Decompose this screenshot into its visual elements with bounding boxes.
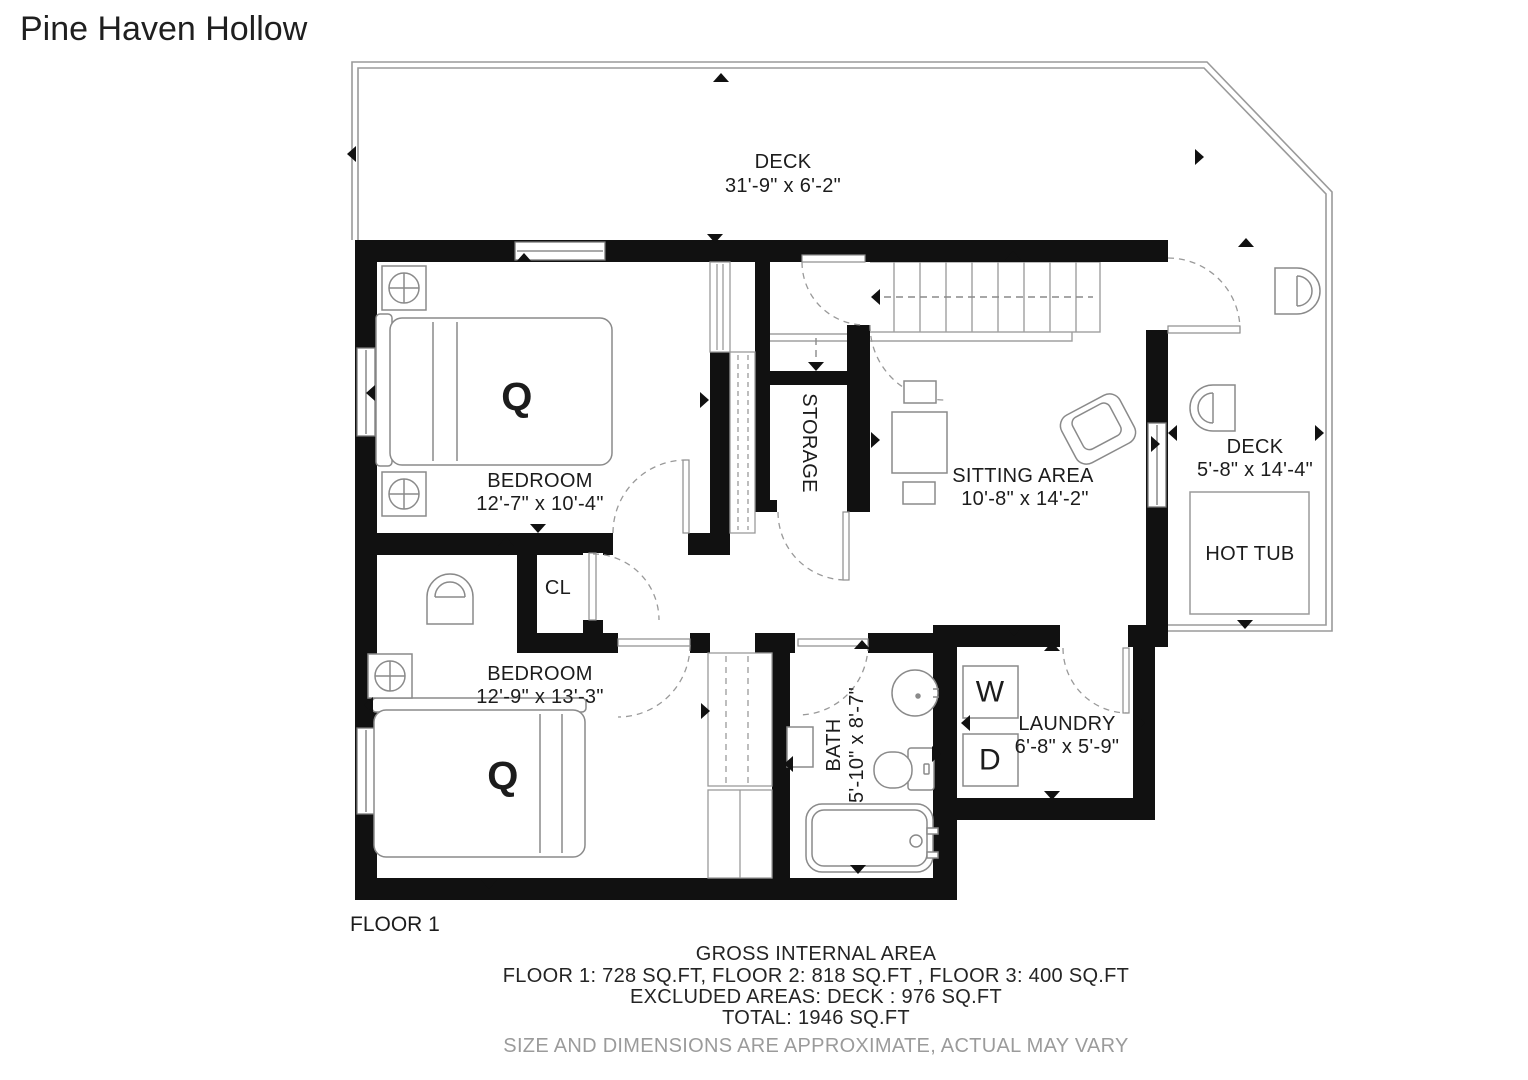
dimension-arrow-icon <box>1195 149 1204 165</box>
window-sitting-deck <box>1148 423 1166 507</box>
door-leaf-storage <box>843 512 849 580</box>
summary-total: TOTAL: 1946 SQ.FT <box>722 1007 910 1029</box>
door-arc-bedroom2 <box>618 645 690 717</box>
summary-excluded: EXCLUDED AREAS: DECK : 976 SQ.FT <box>630 986 1002 1008</box>
summary-floors: FLOOR 1: 728 SQ.FT, FLOOR 2: 818 SQ.FT ,… <box>503 965 1129 987</box>
bed-size-label-2: Q <box>487 754 518 798</box>
door-arc-laundry <box>1063 648 1128 713</box>
door-leaf-laundry <box>1123 648 1129 713</box>
room-label-bedroom1: BEDROOM <box>487 470 592 492</box>
room-dims-bedroom1: 12'-7" x 10'-4" <box>476 493 604 515</box>
door-leaf-bath <box>798 639 868 646</box>
room-label-closet: CL <box>545 577 571 599</box>
nightstand-lamp <box>382 472 426 516</box>
nightstand-lamp <box>382 266 426 310</box>
door-leaf-bedroom1 <box>683 460 689 533</box>
wall-channel <box>730 352 755 533</box>
armchair-arch <box>427 574 473 624</box>
summary-disclaimer: SIZE AND DIMENSIONS ARE APPROXIMATE, ACT… <box>503 1035 1128 1057</box>
door-leaf-deck <box>1168 326 1240 333</box>
table <box>892 412 947 473</box>
room-dims-deck-top: 31'-9" x 6'-2" <box>725 175 841 197</box>
chair <box>903 482 935 504</box>
page-title: Pine Haven Hollow <box>20 10 307 49</box>
bathtub <box>806 804 938 872</box>
room-label-sitting-area: SITTING AREA <box>952 465 1093 487</box>
room-label-deck-right: DECK <box>1227 436 1284 458</box>
dimension-arrow-icon <box>808 362 824 371</box>
dimension-arrow-icon <box>700 392 709 408</box>
room-label-bedroom2: BEDROOM <box>487 663 592 685</box>
sink <box>892 670 939 716</box>
door-leaf-closet <box>589 553 596 620</box>
window-left-bedroom2 <box>357 728 375 814</box>
lower-shelf-compartment <box>708 790 772 878</box>
door-leaf-bedroom2 <box>618 639 690 646</box>
duct-shaft <box>710 262 730 352</box>
chair <box>904 381 936 403</box>
nightstand-lamp <box>368 654 412 698</box>
room-label-deck-top: DECK <box>755 151 812 173</box>
dimension-arrow-icon <box>713 73 729 82</box>
dimension-arrow-icon <box>530 524 546 533</box>
dimension-arrow-icon <box>1238 238 1254 247</box>
dimension-arrow-icon <box>1315 425 1324 441</box>
room-dims-bedroom2: 12'-9" x 13'-3" <box>476 686 604 708</box>
door-arc-storage <box>778 512 846 580</box>
dimension-arrow-icon <box>871 432 880 448</box>
summary-heading: GROSS INTERNAL AREA <box>696 943 937 965</box>
floor-label: FLOOR 1 <box>350 913 440 937</box>
bed-queen-2 <box>372 698 586 857</box>
bedroom2-closet <box>708 653 772 786</box>
dryer-label: D <box>979 744 1001 777</box>
room-dims-bath: 5'-10" x 8'-7" <box>846 687 869 803</box>
room-label-bath-block: BATH 5'-10" x 8'-7" <box>823 687 869 803</box>
room-dims-sitting-area: 10'-8" x 14'-2" <box>961 488 1089 510</box>
dimension-arrow-icon <box>1168 425 1177 441</box>
deck-chair <box>1275 268 1320 314</box>
bed-size-label-1: Q <box>501 375 532 419</box>
door-arc-bedroom1 <box>613 460 686 533</box>
deck-chair <box>1190 385 1235 431</box>
room-label-laundry: LAUNDRY <box>1018 713 1115 735</box>
washer-label: W <box>976 676 1005 709</box>
door-arc-deck <box>1168 258 1240 330</box>
room-dims-deck-right: 5'-8" x 14'-4" <box>1197 459 1313 481</box>
room-label-bath: BATH <box>823 687 846 803</box>
bed-queen-1 <box>376 314 612 466</box>
door-leaf-hall <box>802 255 865 262</box>
staircase <box>770 262 1100 341</box>
window-top-bedroom1 <box>515 242 605 260</box>
armchair <box>1056 390 1140 469</box>
room-label-storage: STORAGE <box>798 393 820 493</box>
room-dims-laundry: 6'-8" x 5'-9" <box>1015 736 1120 758</box>
hot-tub-label: HOT TUB <box>1205 543 1294 565</box>
floor-plan-page: Pine Haven Hollow DECK 31'-9" x 6'-2" BE… <box>0 0 1528 1080</box>
toilet <box>874 748 934 790</box>
